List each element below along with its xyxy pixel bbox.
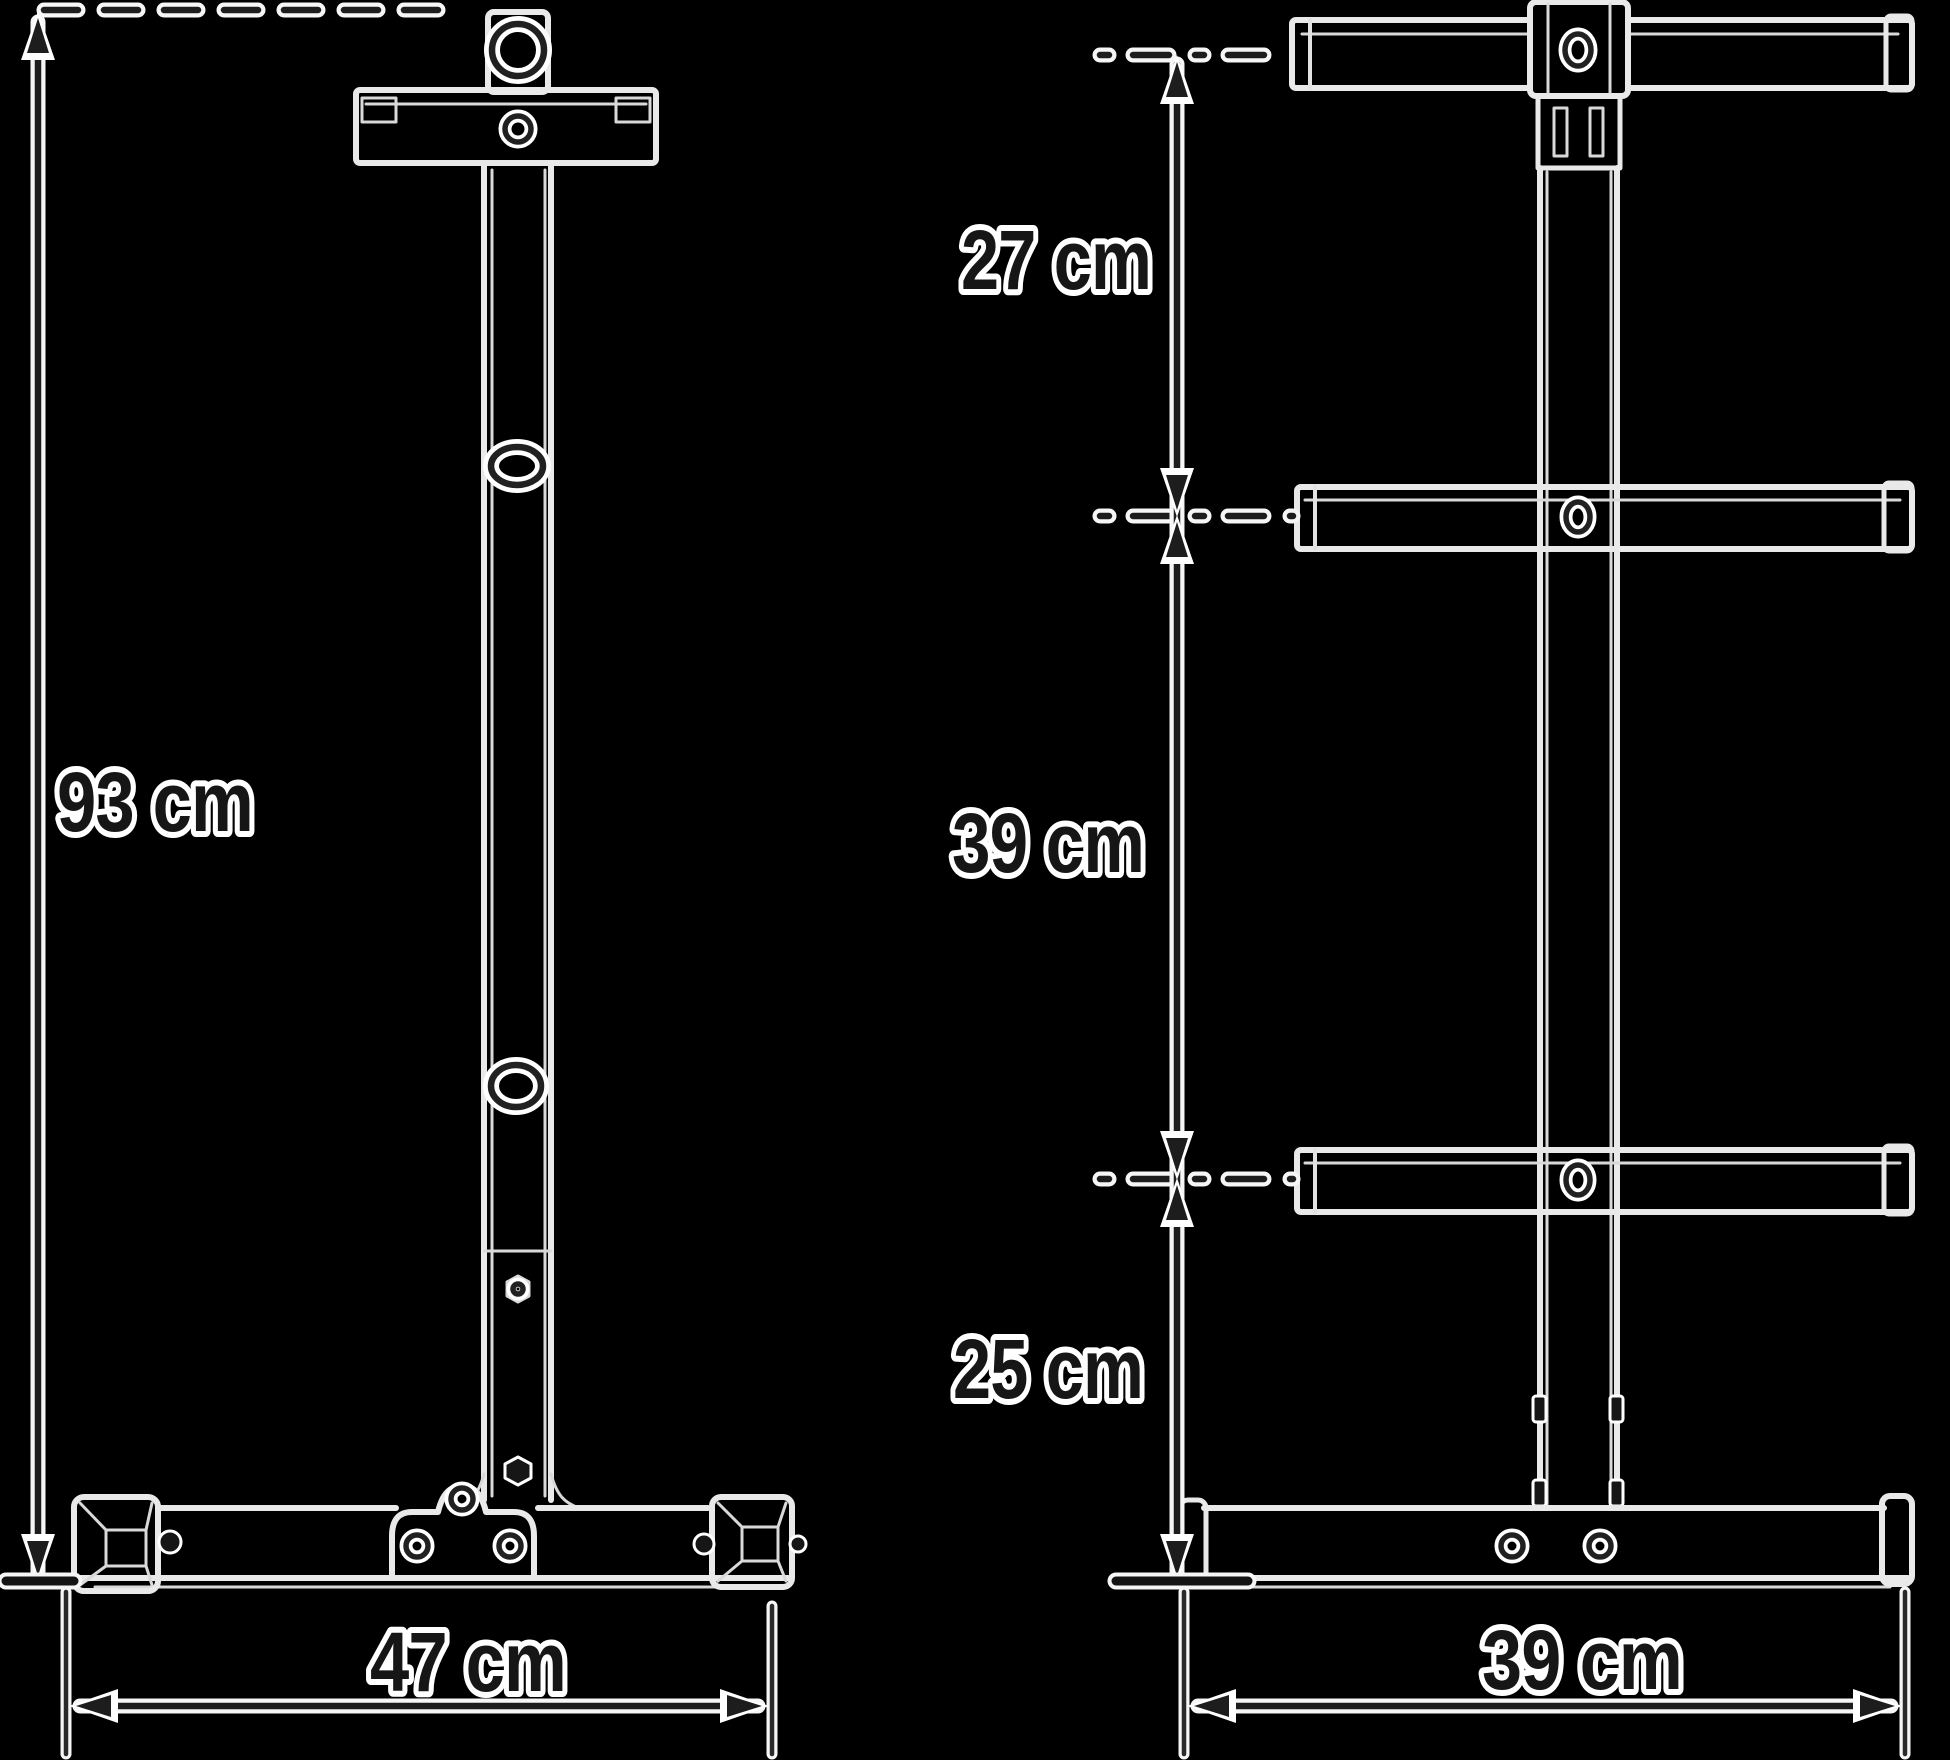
side-top-bracket [1530, 2, 1628, 96]
label-25cm: 25 cm [953, 1322, 1143, 1416]
post-hex-nut-lower [505, 1457, 531, 1485]
base-bolt-right-inner [694, 1534, 714, 1554]
label-47cm: 47 cm [370, 1615, 566, 1709]
post-hex-nut-upper [507, 1276, 529, 1302]
post-nut-2 [1610, 1396, 1623, 1422]
post-nut-1 [1533, 1396, 1546, 1422]
post-nut-3 [1533, 1480, 1546, 1506]
base-bolt-left [159, 1531, 181, 1553]
base-bolt-right-outer [790, 1536, 806, 1552]
label-39cm-middle: 39 cm [952, 796, 1144, 890]
label-39cm-depth: 39 cm [1482, 1613, 1682, 1707]
label-93cm: 93 cm [57, 755, 253, 849]
label-27cm: 27 cm [961, 213, 1151, 307]
post-nut-4 [1610, 1480, 1623, 1506]
dimension-drawing: 93 cm 47 cm [0, 0, 1950, 1760]
